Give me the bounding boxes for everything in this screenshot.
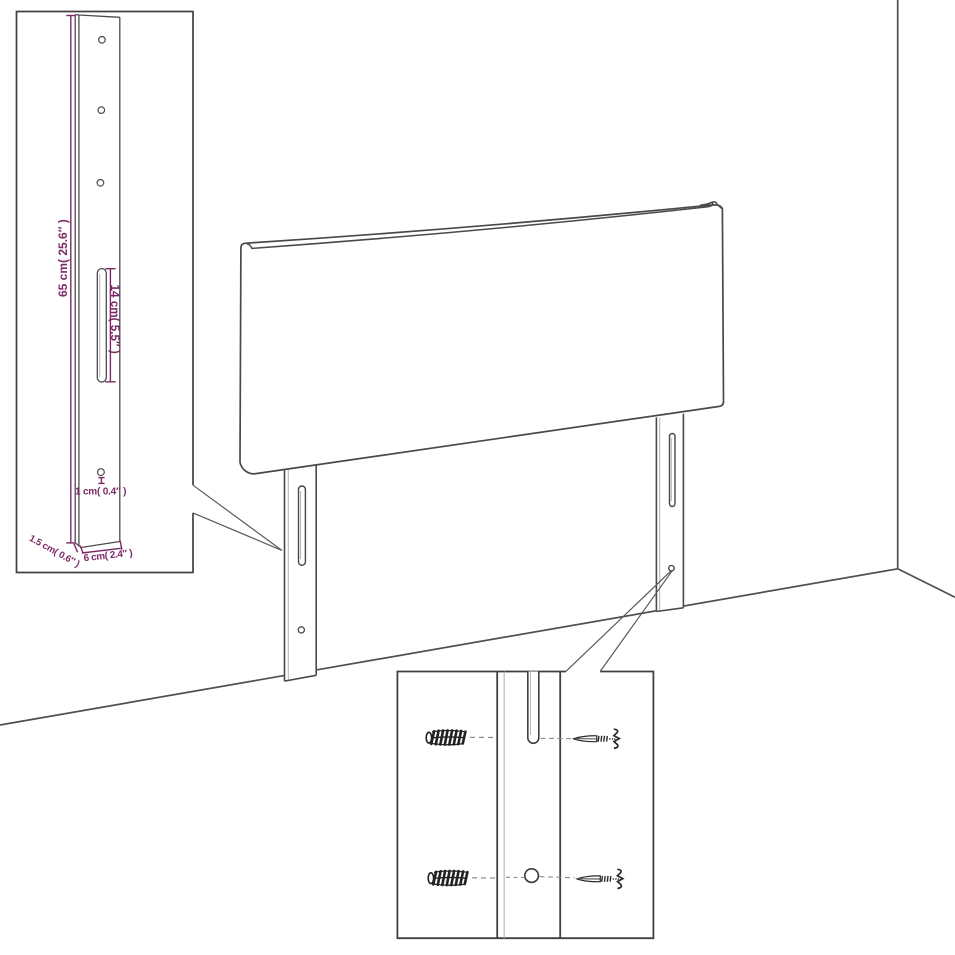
svg-text:65 cm( 25.6″ ): 65 cm( 25.6″ ) xyxy=(56,219,70,297)
svg-text:14 cm( 5.5″ ): 14 cm( 5.5″ ) xyxy=(108,285,121,354)
svg-text:1 cm( 0.4″ ): 1 cm( 0.4″ ) xyxy=(75,486,126,497)
